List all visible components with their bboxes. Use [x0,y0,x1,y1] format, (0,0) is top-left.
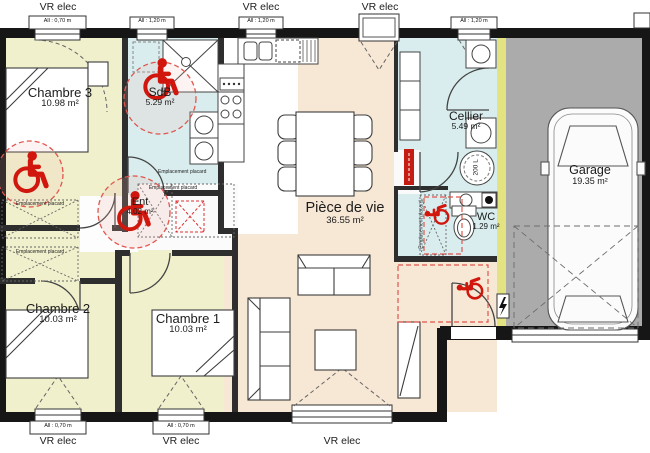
garage-car [541,108,645,330]
nightstand [88,62,108,86]
car-mirror [637,162,645,175]
sofa-two-seat [298,255,370,295]
shelving [400,52,420,140]
room-label-chambre1: Chambre 1 10.03 m² [141,312,235,335]
window-sill-label: All : 0,70 m [153,424,209,430]
room-label-wc: WC 1.29 m² [462,212,510,231]
electrical-panel-icon [497,294,509,318]
window-sill-label: All : 1,20 m [239,19,283,25]
room-label-piece-de-vie: Pièce de vie 36.55 m² [295,201,395,225]
dining-table [296,112,354,196]
kitchen-sink [244,42,257,60]
car-windshield [558,126,628,166]
closet-label: Emplacement placard [142,186,204,191]
car-mirror [541,162,549,175]
shutter-label-top-2: VR elec [233,2,289,13]
car-rear-window [558,296,628,322]
room-label-garage: Garage 19.35 m² [556,164,624,186]
coffee-table [315,330,356,370]
window-sill-label: All : 0,70 m [30,424,86,430]
shutter-label-top-1: VR elec [29,2,87,13]
kitchen-sink [259,42,272,60]
shutter-label-bottom-1: VR elec [30,436,86,447]
water-heater-label: 200 L [474,156,481,178]
chimney [634,13,650,28]
bay-window [292,405,392,423]
entrance-door-gap [451,327,496,339]
room-label-chambre2: Chambre 2 10.03 m² [12,302,104,325]
shutter-label-bottom-2: VR elec [153,436,209,447]
window-sill-label: All : 1,20 m [451,19,497,25]
closet-label: Emplacement placard [4,202,76,207]
floor-plan-drawing [0,0,650,453]
window-sill-label: All : 1,20 m [130,19,174,25]
tv-unit [398,322,420,398]
room-label-ent: Ent 4.02 m² [112,197,168,216]
room-label-chambre3: Chambre 3 10.98 m² [14,86,106,109]
washing-machine [466,40,496,68]
closet-label: Emplacement placard [4,250,76,255]
shutter-label-bottom-3: VR elec [314,436,370,447]
shutter-label-top-3: VR elec [352,2,408,13]
closet-label-vertical: Emplacement placard [419,197,424,253]
closet-label: Emplacement placard [158,170,204,175]
red-door-label [404,149,414,185]
sofa-three-seat [248,298,290,400]
floor-plan: VR elec VR elec VR elec VR elec VR elec … [0,0,650,453]
room-label-cellier: Cellier 5.49 m² [436,110,496,131]
window-sill-label: All : 0,70 m [29,19,86,25]
room-label-sdb: SdB 5.29 m² [130,86,190,107]
